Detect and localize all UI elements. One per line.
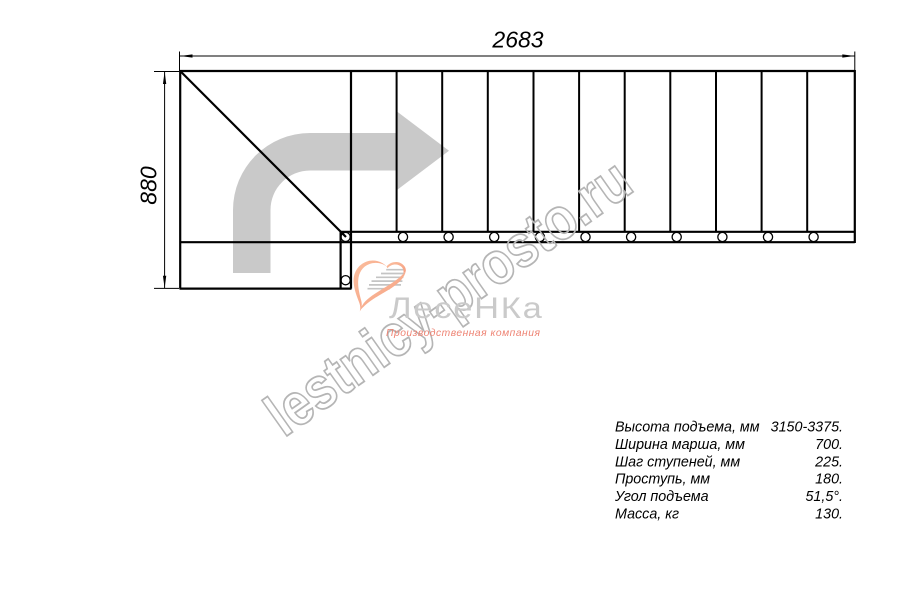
svg-text:Угол подъема: Угол подъема — [614, 489, 709, 505]
svg-text:700.: 700. — [815, 437, 843, 453]
svg-text:3150-3375.: 3150-3375. — [771, 420, 843, 436]
svg-text:Шаг ступеней, мм: Шаг ступеней, мм — [615, 454, 740, 470]
svg-text:880: 880 — [136, 166, 162, 205]
svg-text:ЛесеНКа: ЛесеНКа — [389, 291, 543, 324]
svg-text:Высота подъема, мм: Высота подъема, мм — [615, 420, 760, 436]
svg-text:Ширина марша, мм: Ширина марша, мм — [615, 437, 745, 453]
svg-text:2683: 2683 — [491, 27, 543, 53]
svg-text:225.: 225. — [814, 454, 843, 470]
svg-text:Производственная компания: Производственная компания — [386, 328, 540, 339]
svg-text:180.: 180. — [815, 472, 843, 488]
svg-text:Проступь, мм: Проступь, мм — [615, 472, 710, 488]
svg-text:Масса, кг: Масса, кг — [615, 507, 679, 523]
svg-text:130.: 130. — [815, 507, 843, 523]
svg-text:51,5°.: 51,5°. — [805, 489, 843, 505]
